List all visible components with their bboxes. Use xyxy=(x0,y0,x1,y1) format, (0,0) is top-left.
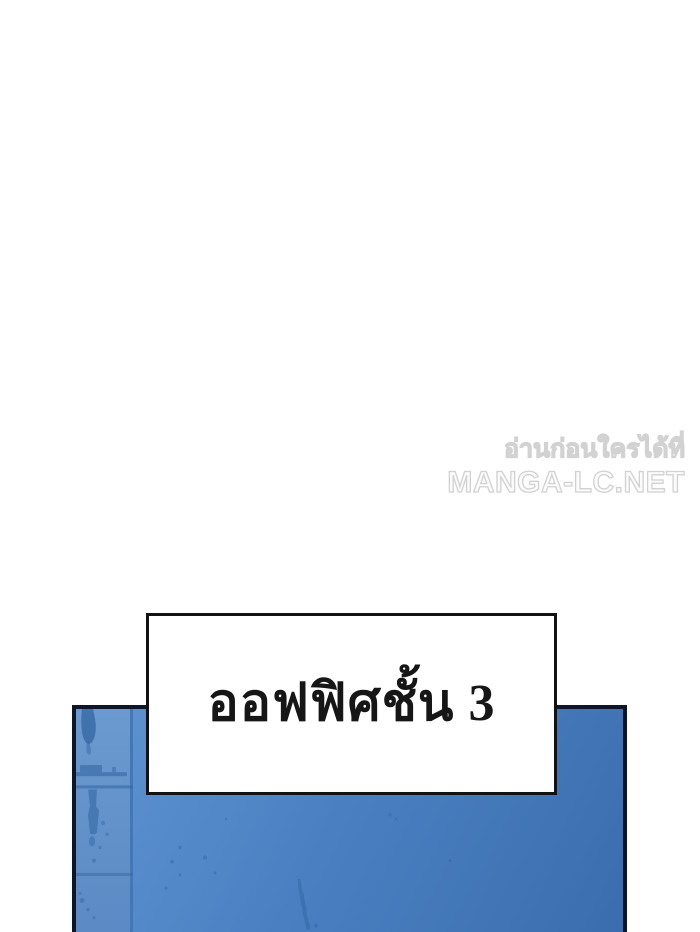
panel-speckles xyxy=(165,813,452,930)
watermark-tagline: อ่านก่อนใครได้ที่ xyxy=(447,433,685,466)
wall-stain-top xyxy=(81,709,96,755)
wall-stain-bottom xyxy=(79,892,96,919)
caption-box: ออฟฟิศชั้น 3 xyxy=(146,613,557,795)
watermark-site-name: MANGA-LC.NET xyxy=(447,466,685,499)
wall-pipe-drip xyxy=(88,789,109,862)
caption-text: ออฟฟิศชั้น 3 xyxy=(208,660,496,749)
site-watermark: อ่านก่อนใครได้ที่ MANGA-LC.NET xyxy=(447,433,685,499)
manga-page: อ่านก่อนใครได้ที่ MANGA-LC.NET xyxy=(0,0,700,932)
tile-grout-line-upper xyxy=(76,785,133,788)
tile-grout-line-lower xyxy=(76,873,133,876)
wall-shelf-fixture xyxy=(76,765,127,776)
